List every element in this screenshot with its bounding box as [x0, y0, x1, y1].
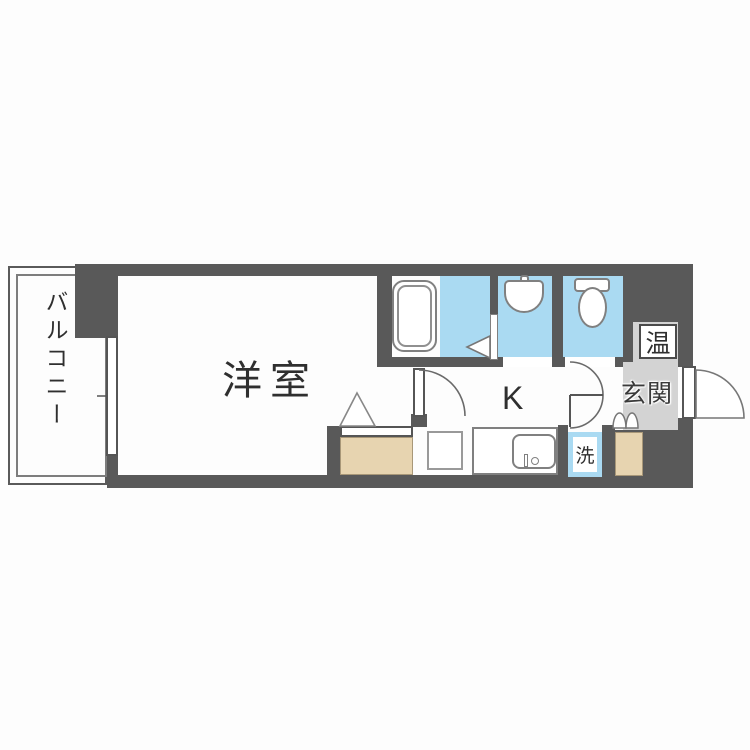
wall-washbasin-toilet	[552, 276, 563, 367]
kitchen-door-leaf	[413, 368, 425, 417]
toilet-threshold	[565, 357, 615, 367]
wall-west-pillar	[75, 264, 118, 338]
entrance-door-arc	[696, 370, 744, 418]
water-heater-box: 温	[639, 324, 677, 359]
wall-left-of-laundry	[558, 425, 568, 477]
wall-ne-corner	[633, 264, 693, 322]
kitchen-label: K	[502, 380, 523, 417]
entrance-step	[615, 432, 643, 476]
balcony-label: バルコニー	[44, 290, 72, 470]
wall-closet-left	[327, 426, 340, 475]
water-heater-label: 温	[645, 324, 670, 360]
door-swing-arc	[419, 370, 465, 416]
entrance-door-leaf	[682, 366, 696, 419]
wall-bath-door-jamb	[490, 276, 498, 314]
refrigerator-space	[427, 431, 463, 470]
toilet-door-leaf	[570, 395, 603, 427]
western-room-label: 洋室	[200, 348, 340, 406]
toilet-door-arc-lower	[570, 395, 603, 428]
laundry-label: 洗	[575, 441, 594, 468]
washing-machine-pan: 洗	[568, 432, 602, 477]
wall-east-upper	[678, 322, 693, 367]
closet-triangle-icon	[340, 393, 375, 426]
floorplan-canvas: バルコニー 温 洗	[0, 0, 750, 750]
balcony-window	[106, 336, 118, 456]
wall-se-block-a	[602, 425, 615, 488]
bath-door-panel	[490, 314, 498, 360]
bathroom-floor	[440, 276, 490, 357]
toilet-icon	[578, 287, 607, 328]
faucet-knob	[531, 457, 539, 465]
closet	[340, 437, 413, 475]
entrance-label: 玄関	[621, 374, 673, 410]
washbasin-threshold	[503, 357, 552, 367]
faucet-bar	[524, 454, 528, 467]
wall-toilet-entrance	[623, 276, 633, 362]
closet-front-strip	[340, 426, 413, 437]
bathtub-inner-rim	[397, 285, 432, 347]
wall-bath-west	[377, 264, 392, 367]
